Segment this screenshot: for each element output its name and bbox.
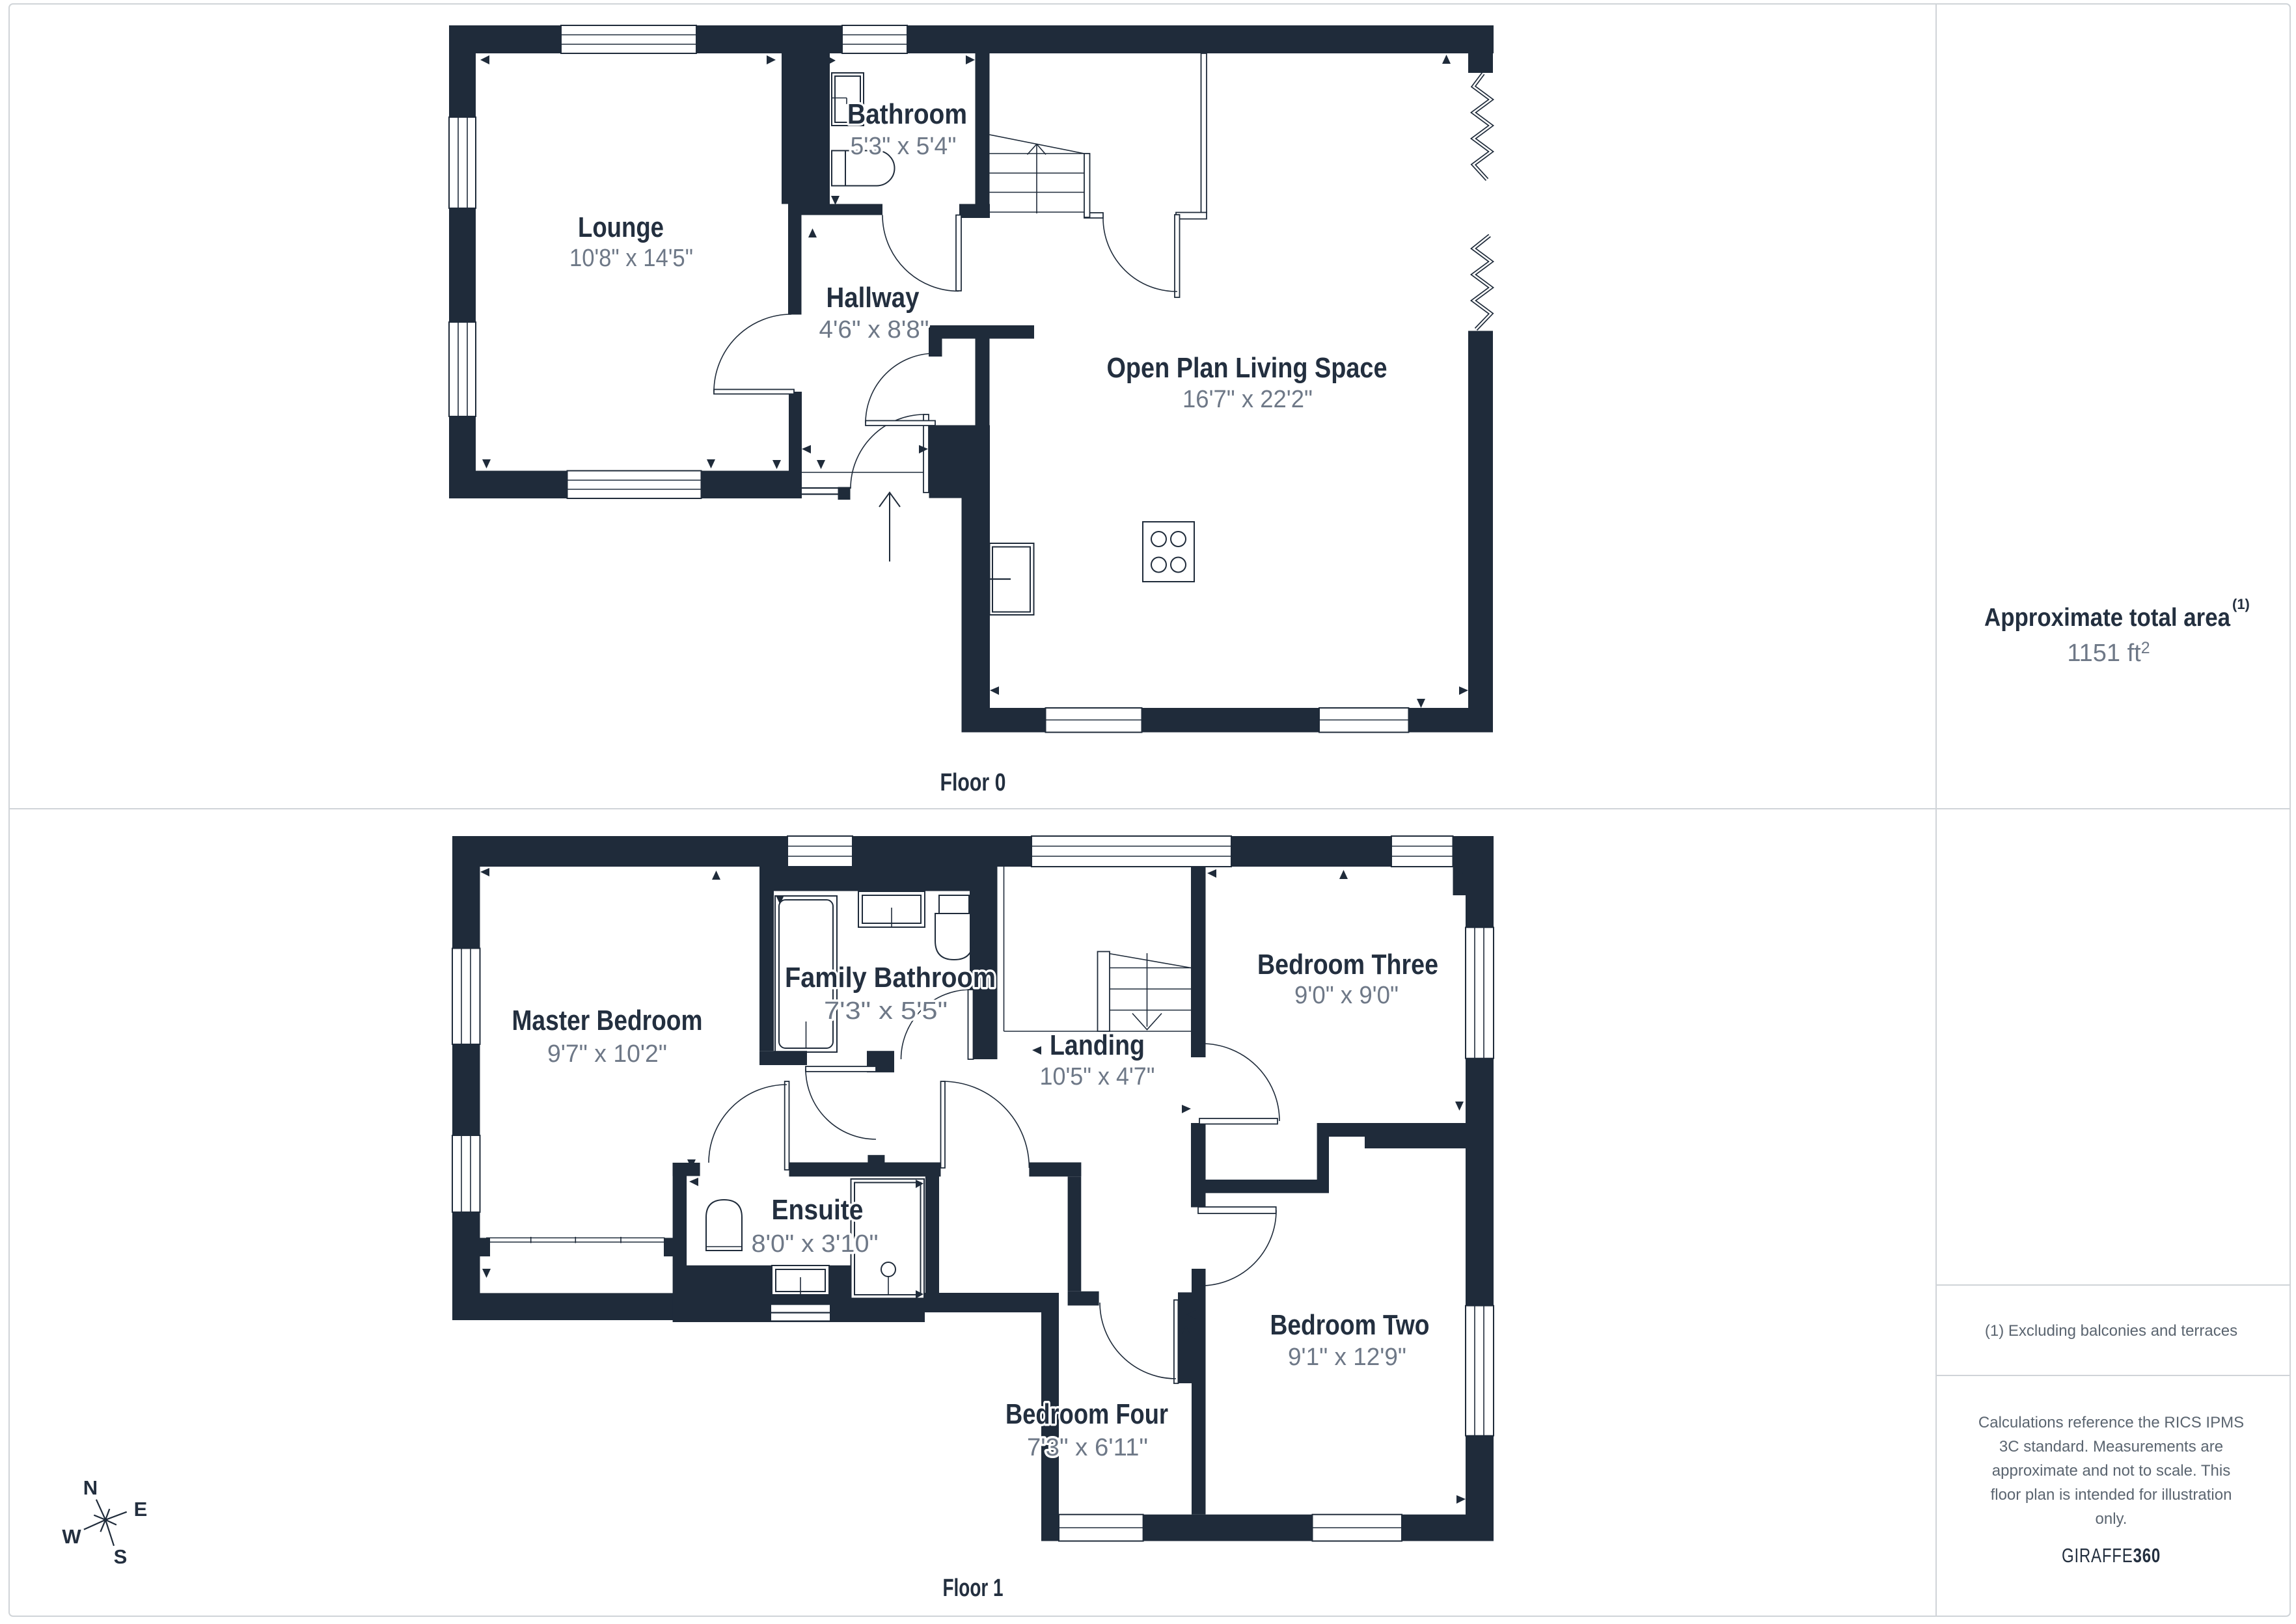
- svg-text:(1): (1): [2232, 596, 2250, 612]
- svg-text:Calculations reference the RIC: Calculations reference the RICS IPMS: [1978, 1414, 2244, 1431]
- svg-text:Family Bathroom: Family Bathroom: [785, 962, 996, 994]
- svg-text:Bathroom: Bathroom: [847, 98, 967, 130]
- svg-text:Ensuite: Ensuite: [772, 1194, 864, 1226]
- svg-text:9'1" x 12'9": 9'1" x 12'9": [1288, 1344, 1406, 1371]
- svg-text:7'3" x 5'5": 7'3" x 5'5": [824, 997, 948, 1025]
- svg-text:only.: only.: [2096, 1510, 2127, 1528]
- svg-text:3C standard. Measurements are: 3C standard. Measurements are: [1999, 1438, 2223, 1455]
- svg-text:9'0" x 9'0": 9'0" x 9'0": [1294, 982, 1399, 1009]
- svg-text:9'7" x 10'2": 9'7" x 10'2": [547, 1040, 667, 1068]
- svg-text:Master Bedroom: Master Bedroom: [512, 1005, 703, 1036]
- svg-text:E: E: [134, 1498, 148, 1521]
- svg-text:Lounge: Lounge: [578, 211, 664, 243]
- svg-text:1151 ft2: 1151 ft2: [2067, 639, 2150, 667]
- svg-text:Approximate total area: Approximate total area: [1984, 604, 2230, 632]
- svg-text:Landing: Landing: [1050, 1029, 1145, 1061]
- svg-text:5'3" x 5'4": 5'3" x 5'4": [851, 133, 957, 160]
- svg-text:7'3" x 6'11": 7'3" x 6'11": [1027, 1434, 1148, 1461]
- svg-text:Hallway: Hallway: [827, 282, 920, 314]
- svg-text:approximate and not to scale.: approximate and not to scale. This: [1992, 1462, 2230, 1480]
- svg-text:S: S: [114, 1545, 128, 1568]
- svg-text:Open Plan Living Space: Open Plan Living Space: [1107, 352, 1387, 384]
- svg-text:10'8" x 14'5": 10'8" x 14'5": [569, 245, 693, 272]
- svg-text:W: W: [62, 1525, 81, 1548]
- svg-text:Bedroom Four: Bedroom Four: [1005, 1398, 1168, 1430]
- svg-text:Bedroom Three: Bedroom Three: [1257, 949, 1438, 981]
- svg-text:8'0" x 3'10": 8'0" x 3'10": [752, 1230, 879, 1258]
- svg-text:Bedroom Two: Bedroom Two: [1270, 1309, 1430, 1341]
- svg-text:10'5" x 4'7": 10'5" x 4'7": [1040, 1063, 1155, 1090]
- svg-text:16'7" x 22'2": 16'7" x 22'2": [1182, 386, 1313, 413]
- svg-text:(1) Excluding balconies and te: (1) Excluding balconies and terraces: [1985, 1322, 2237, 1340]
- svg-text:Floor 1: Floor 1: [943, 1575, 1004, 1602]
- svg-text:Floor 0: Floor 0: [940, 769, 1006, 796]
- svg-text:4'6" x 8'8": 4'6" x 8'8": [819, 316, 929, 344]
- svg-text:GIRAFFE360: GIRAFFE360: [2062, 1544, 2161, 1567]
- svg-text:N: N: [83, 1476, 98, 1499]
- svg-text:floor plan is intended for ill: floor plan is intended for illustration: [1991, 1486, 2232, 1504]
